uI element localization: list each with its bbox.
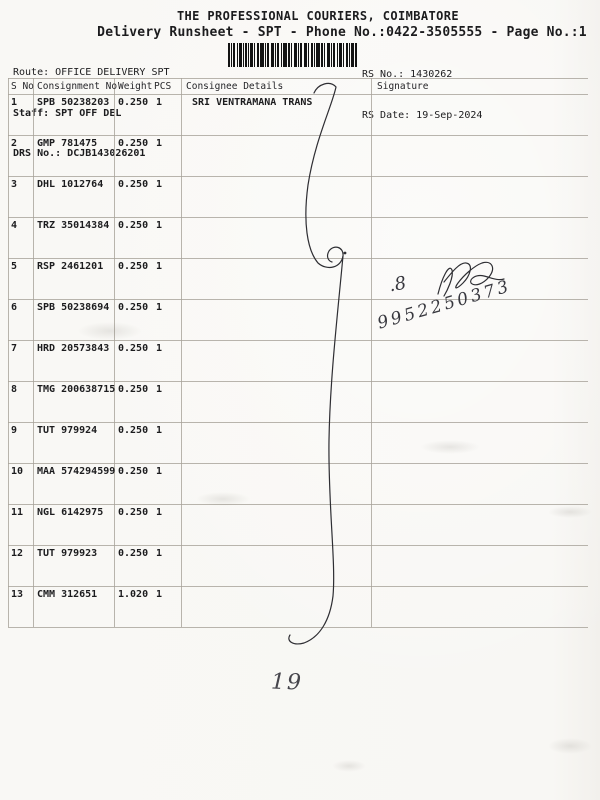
drs-no-line: DRS No.: DCJB143026201 bbox=[13, 147, 170, 161]
table-row: 8 TMG 200638715 0.250 1 bbox=[0, 381, 600, 422]
table-row: 13 CMM 312651 1.020 1 bbox=[0, 586, 600, 627]
scan-smudge bbox=[548, 506, 592, 518]
cell-s-no: 6 bbox=[11, 302, 17, 313]
route-line: Route: OFFICE DELIVERY SPT bbox=[13, 66, 170, 80]
rs-no-line: RS No.: 1430262 bbox=[362, 68, 482, 82]
meta-left-block: Route: OFFICE DELIVERY SPT Staff: SPT OF… bbox=[13, 39, 170, 188]
cell-consignment-no: MAA 574294599 bbox=[37, 466, 115, 477]
table-row: 11 NGL 6142975 0.250 1 bbox=[0, 504, 600, 545]
scan-smudge bbox=[420, 440, 480, 454]
cell-s-no: 9 bbox=[11, 425, 17, 436]
cell-consignment-no: TUT 979924 bbox=[37, 425, 97, 436]
cell-s-no: 10 bbox=[11, 466, 23, 477]
rs-date-line: RS Date: 19-Sep-2024 bbox=[362, 109, 482, 123]
table-row: 6 SPB 50238694 0.250 1 bbox=[0, 299, 600, 340]
pen-stroke-top-loop bbox=[306, 83, 343, 267]
table-row: 7 HRD 20573843 0.250 1 bbox=[0, 340, 600, 381]
page-subtitle: Delivery Runsheet - SPT - Phone No.:0422… bbox=[42, 25, 600, 40]
table-row: 12 TUT 979923 0.250 1 bbox=[0, 545, 600, 586]
meta-right-block: RS No.: 1430262 RS Date: 19-Sep-2024 bbox=[362, 41, 482, 149]
scan-smudge bbox=[78, 322, 142, 340]
table-row: 10 MAA 574294599 0.250 1 bbox=[0, 463, 600, 504]
staff-line: Staff: SPT OFF DEL bbox=[13, 107, 170, 121]
cell-pcs: 1 bbox=[156, 302, 162, 313]
cell-pcs: 1 bbox=[156, 343, 162, 354]
cell-consignment-no: TUT 979923 bbox=[37, 548, 97, 559]
page-note-handwritten: 19 bbox=[271, 669, 304, 695]
cell-weight: 0.250 bbox=[118, 548, 148, 559]
cell-pcs: 1 bbox=[156, 220, 162, 231]
cell-consignment-no: RSP 2461201 bbox=[37, 261, 103, 272]
cell-consignment-no: CMM 312651 bbox=[37, 589, 97, 600]
cell-consignee-details: SRI VENTRAMANA TRANS bbox=[192, 97, 312, 108]
column-header-consignee-details: Consignee Details bbox=[186, 81, 283, 92]
cell-pcs: 1 bbox=[156, 589, 162, 600]
cell-weight: 0.250 bbox=[118, 384, 148, 395]
cell-weight: 0.250 bbox=[118, 302, 148, 313]
cell-pcs: 1 bbox=[156, 548, 162, 559]
cell-s-no: 11 bbox=[11, 507, 23, 518]
cell-pcs: 1 bbox=[156, 425, 162, 436]
cell-s-no: 4 bbox=[11, 220, 17, 231]
cell-consignment-no: TRZ 35014384 bbox=[37, 220, 109, 231]
cell-pcs: 1 bbox=[156, 507, 162, 518]
cell-weight: 0.250 bbox=[118, 466, 148, 477]
scan-smudge bbox=[548, 738, 592, 754]
cell-s-no: 8 bbox=[11, 384, 17, 395]
barcode bbox=[228, 43, 358, 67]
cell-weight: 0.250 bbox=[118, 425, 148, 436]
table-row: 9 TUT 979924 0.250 1 bbox=[0, 422, 600, 463]
cell-pcs: 1 bbox=[156, 261, 162, 272]
cell-weight: 0.250 bbox=[118, 261, 148, 272]
cell-pcs: 1 bbox=[156, 384, 162, 395]
cell-s-no: 12 bbox=[11, 548, 23, 559]
page-title: THE PROFESSIONAL COURIERS, COIMBATORE bbox=[18, 9, 600, 23]
pen-stroke-long-vertical bbox=[289, 256, 343, 644]
table-row: 4 TRZ 35014384 0.250 1 bbox=[0, 217, 600, 258]
cell-weight: 0.250 bbox=[118, 507, 148, 518]
cell-consignment-no: NGL 6142975 bbox=[37, 507, 103, 518]
cell-consignment-no: SPB 50238694 bbox=[37, 302, 109, 313]
signature-note-handwritten: .8 bbox=[387, 273, 408, 297]
cell-s-no: 5 bbox=[11, 261, 17, 272]
cell-weight: 0.250 bbox=[118, 343, 148, 354]
cell-weight: 0.250 bbox=[118, 220, 148, 231]
cell-pcs: 1 bbox=[156, 466, 162, 477]
scan-smudge bbox=[332, 760, 366, 772]
cell-s-no: 13 bbox=[11, 589, 23, 600]
cell-consignment-no: TMG 200638715 bbox=[37, 384, 115, 395]
scanned-runsheet-page: THE PROFESSIONAL COURIERS, COIMBATORE De… bbox=[0, 0, 600, 800]
cell-s-no: 7 bbox=[11, 343, 17, 354]
cell-consignment-no: HRD 20573843 bbox=[37, 343, 109, 354]
cell-weight: 1.020 bbox=[118, 589, 148, 600]
scan-smudge bbox=[196, 492, 250, 506]
